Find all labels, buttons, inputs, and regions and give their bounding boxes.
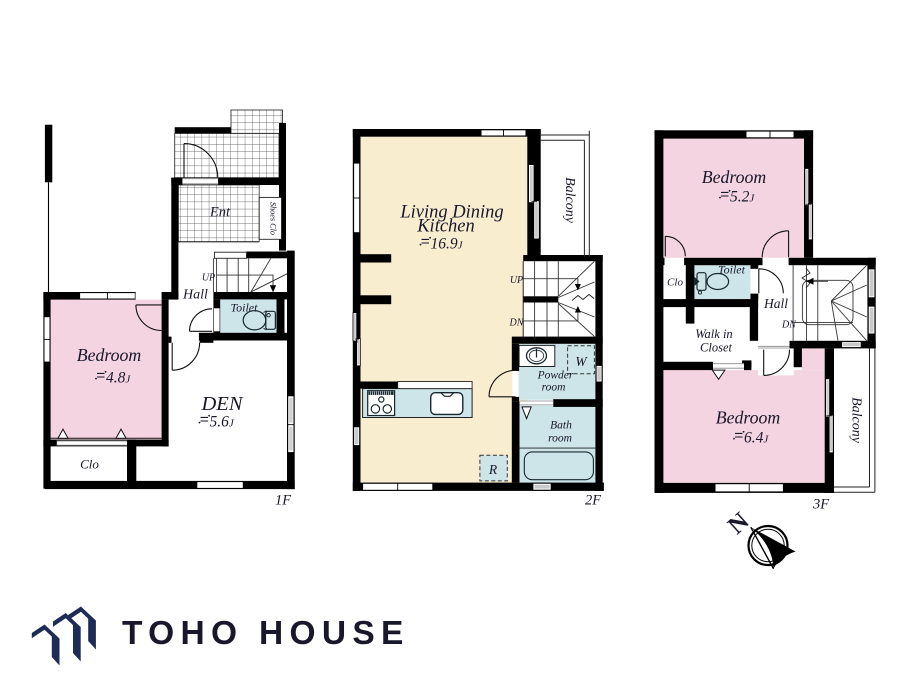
svg-text:Ent: Ent	[209, 205, 231, 221]
svg-text:Bedroom: Bedroom	[77, 345, 142, 365]
svg-text:Balcony: Balcony	[562, 177, 577, 224]
svg-text:Hall: Hall	[182, 288, 208, 303]
svg-text:room: room	[542, 382, 566, 394]
svg-text:Closet: Closet	[700, 341, 732, 355]
svg-text:W: W	[575, 354, 588, 369]
svg-text:Balcony: Balcony	[849, 397, 864, 444]
svg-text:Hall: Hall	[763, 296, 788, 311]
svg-text:Kitchen: Kitchen	[416, 217, 475, 237]
svg-text:Toilet: Toilet	[718, 263, 746, 277]
svg-text:Clo: Clo	[667, 277, 683, 289]
svg-text:2F: 2F	[585, 493, 601, 509]
svg-text:DN: DN	[509, 318, 525, 329]
svg-text:TOHO HOUSE: TOHO HOUSE	[122, 615, 410, 652]
svg-text:Clo: Clo	[80, 457, 99, 472]
svg-text:Walk in: Walk in	[695, 327, 732, 341]
svg-text:room: room	[548, 433, 572, 445]
svg-text:Toilet: Toilet	[231, 301, 259, 315]
svg-text:Shoes Clo: Shoes Clo	[269, 202, 278, 235]
svg-text:UP: UP	[202, 273, 215, 284]
svg-text:UP: UP	[510, 275, 523, 286]
svg-text:3F: 3F	[812, 497, 829, 513]
svg-text:1F: 1F	[275, 493, 291, 509]
svg-text:DEN: DEN	[201, 393, 244, 415]
svg-text:Bedroom: Bedroom	[716, 408, 781, 428]
svg-text:Powder: Powder	[537, 370, 574, 382]
svg-text:R: R	[488, 462, 498, 477]
svg-text:DN: DN	[781, 320, 797, 331]
svg-text:Bath: Bath	[550, 420, 572, 432]
svg-text:Bedroom: Bedroom	[702, 167, 767, 187]
